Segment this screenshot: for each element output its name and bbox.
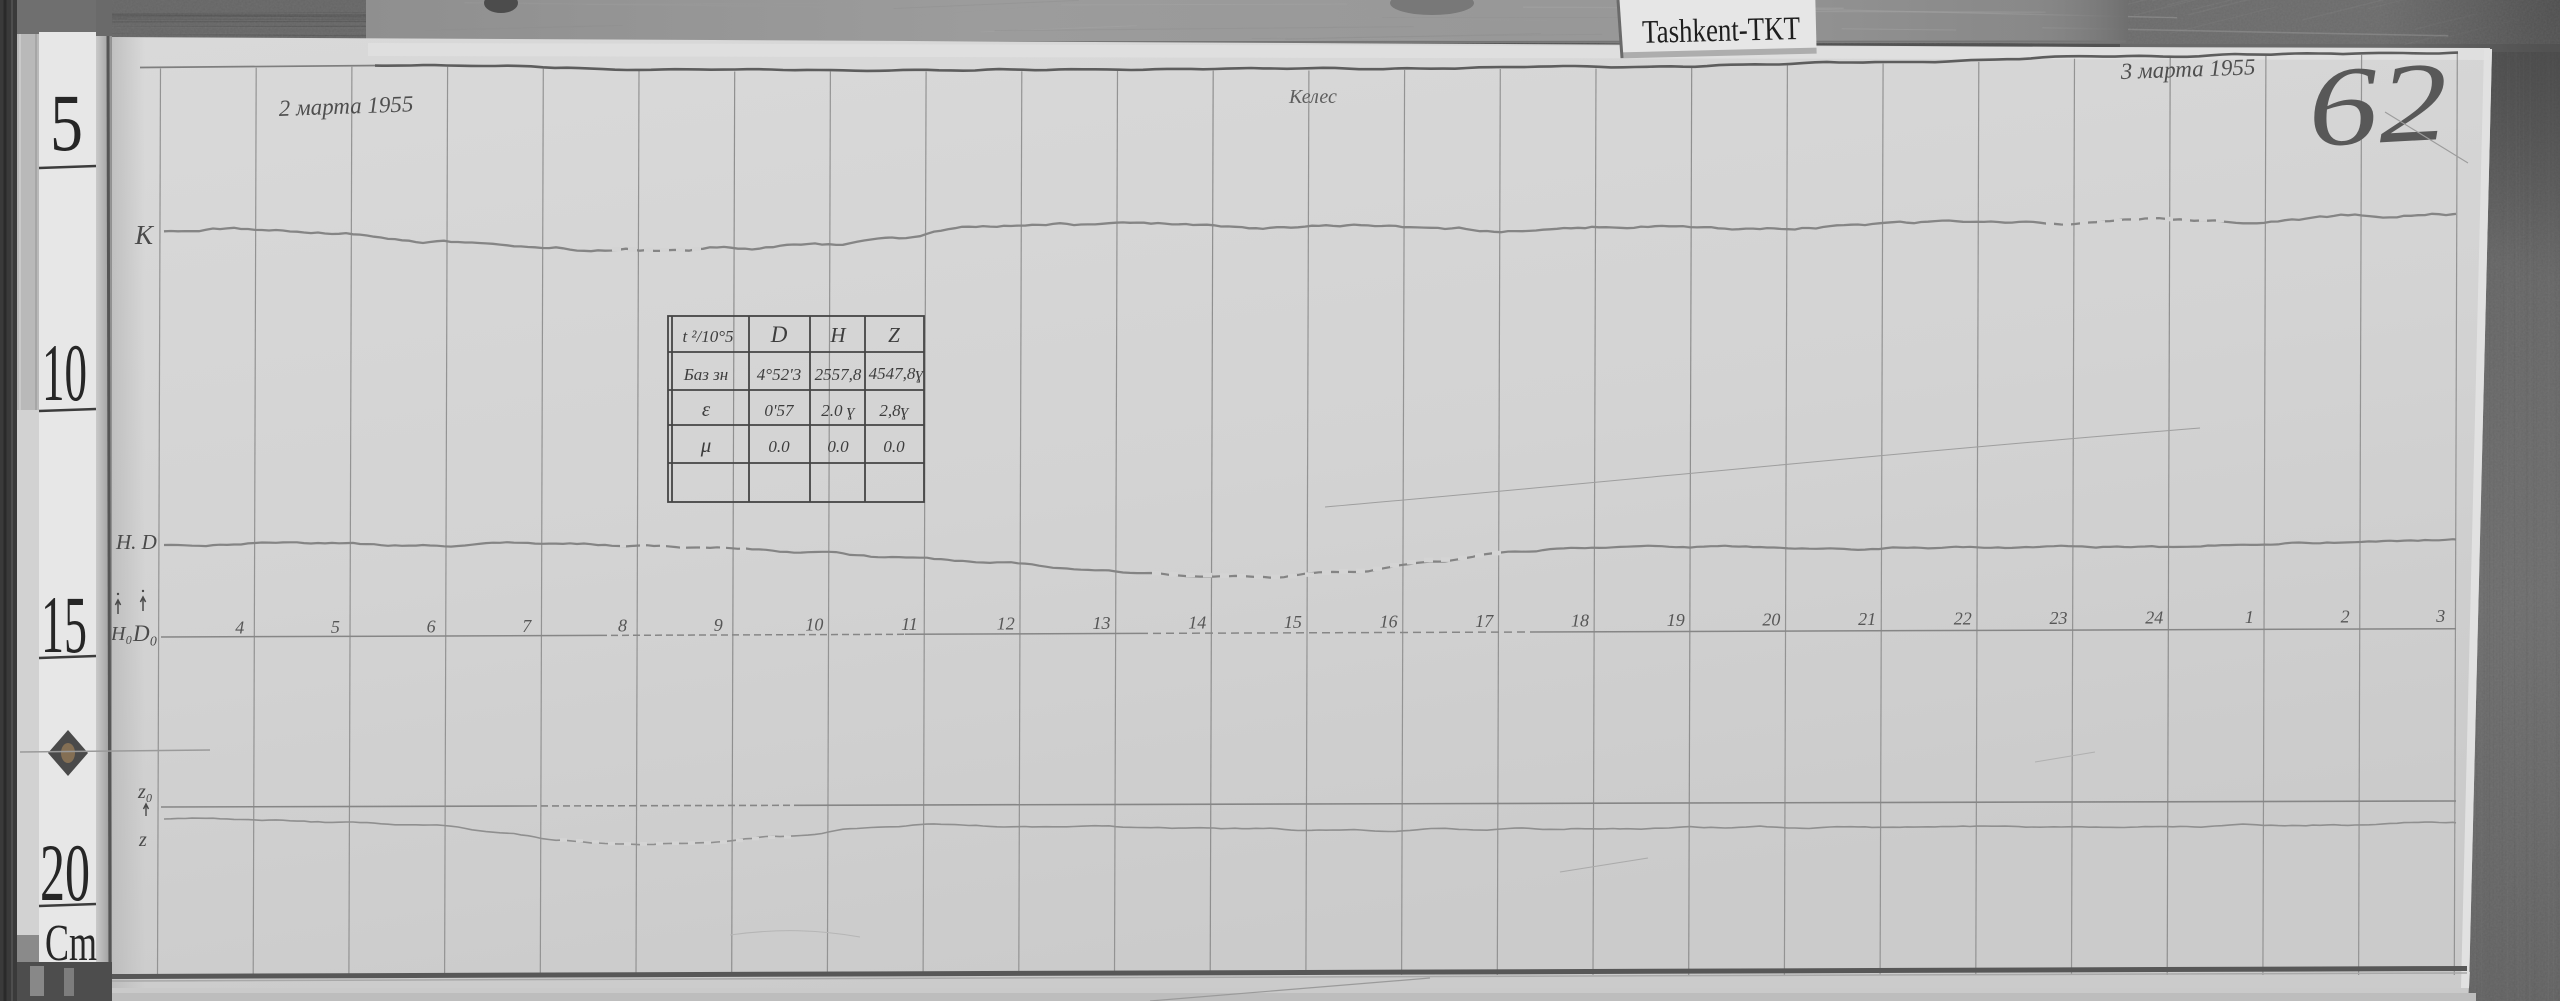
svg-text:16: 16 xyxy=(1380,612,1398,632)
svg-text:10: 10 xyxy=(805,615,823,635)
svg-text:19: 19 xyxy=(1667,610,1685,630)
svg-text:4: 4 xyxy=(235,618,244,638)
svg-text:0.0: 0.0 xyxy=(883,437,905,456)
svg-text:7: 7 xyxy=(522,616,532,636)
svg-text:21: 21 xyxy=(1858,609,1876,629)
svg-text:Баз зн: Баз зн xyxy=(683,365,728,384)
svg-text:t ²/10°5: t ²/10°5 xyxy=(682,327,733,346)
svg-text:23: 23 xyxy=(2050,608,2068,628)
svg-text:H. D: H. D xyxy=(115,530,157,554)
svg-text:14: 14 xyxy=(1188,613,1206,633)
svg-text:11: 11 xyxy=(901,614,918,634)
svg-text:2.0 ɣ: 2.0 ɣ xyxy=(821,401,856,420)
svg-text:62: 62 xyxy=(2305,39,2451,171)
svg-text:0'57: 0'57 xyxy=(764,401,795,420)
svg-text:2557,8: 2557,8 xyxy=(815,365,862,384)
svg-text:20: 20 xyxy=(1762,610,1780,630)
svg-text:13: 13 xyxy=(1093,613,1111,633)
svg-text:6: 6 xyxy=(427,617,436,637)
svg-text:5: 5 xyxy=(331,617,340,637)
svg-text:ε: ε xyxy=(702,397,711,421)
svg-text:20: 20 xyxy=(40,827,90,918)
svg-text:Z: Z xyxy=(888,323,900,347)
svg-text:0.0: 0.0 xyxy=(827,437,849,456)
svg-text:3 марта 1955: 3 марта 1955 xyxy=(2119,54,2256,84)
svg-text:24: 24 xyxy=(2145,608,2163,628)
svg-text:9: 9 xyxy=(714,615,723,635)
svg-text:2 марта 1955: 2 марта 1955 xyxy=(278,91,414,121)
svg-text:2,8ɣ: 2,8ɣ xyxy=(879,401,909,420)
svg-text:z₀: z₀ xyxy=(137,781,153,803)
svg-text:1: 1 xyxy=(2245,607,2254,627)
svg-text:5: 5 xyxy=(50,77,83,168)
svg-text:Tashkent-TKT: Tashkent-TKT xyxy=(1642,11,1801,51)
svg-text:Келес: Келес xyxy=(1288,86,1337,108)
svg-text:4547,8ɣ: 4547,8ɣ xyxy=(869,364,925,383)
svg-text:8: 8 xyxy=(618,616,627,636)
svg-text:D: D xyxy=(770,322,788,347)
svg-text:μ: μ xyxy=(700,433,712,457)
svg-text:2: 2 xyxy=(2341,607,2350,627)
svg-text:z: z xyxy=(138,829,147,851)
svg-text:15: 15 xyxy=(1284,612,1302,632)
svg-text:12: 12 xyxy=(997,614,1015,634)
svg-text:18: 18 xyxy=(1571,611,1589,631)
svg-text:4°52'3: 4°52'3 xyxy=(757,365,801,384)
svg-text:H: H xyxy=(829,323,847,347)
svg-text:10: 10 xyxy=(42,327,87,418)
svg-text:D₀: D₀ xyxy=(132,621,158,646)
svg-text:3: 3 xyxy=(2435,606,2445,626)
svg-text:15: 15 xyxy=(41,579,87,670)
svg-text:0.0: 0.0 xyxy=(768,437,790,456)
svg-text:H₀: H₀ xyxy=(110,623,132,645)
svg-text:K: K xyxy=(134,220,155,250)
svg-text:22: 22 xyxy=(1954,609,1972,629)
svg-text:17: 17 xyxy=(1475,611,1494,631)
